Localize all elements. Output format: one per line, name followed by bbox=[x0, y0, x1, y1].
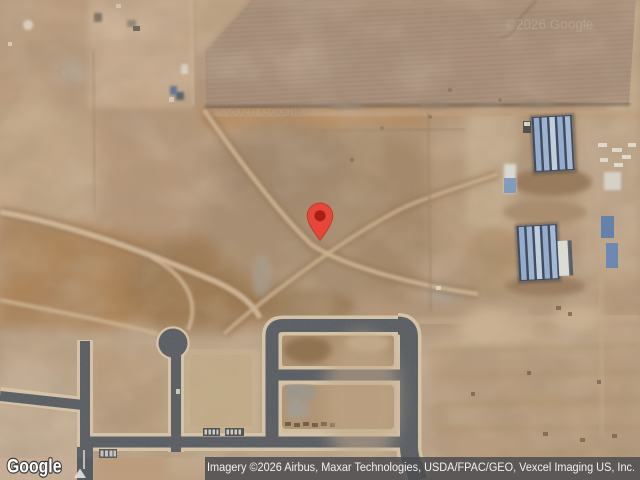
svg-text:Google: Google bbox=[7, 457, 62, 478]
svg-text:Imagery ©2026 Airbus, Maxar Te: Imagery ©2026 Airbus, Maxar Technologies… bbox=[207, 460, 635, 474]
svg-text:©2026 Google: ©2026 Google bbox=[218, 103, 302, 118]
svg-text:©2026 Google: ©2026 Google bbox=[506, 17, 593, 32]
